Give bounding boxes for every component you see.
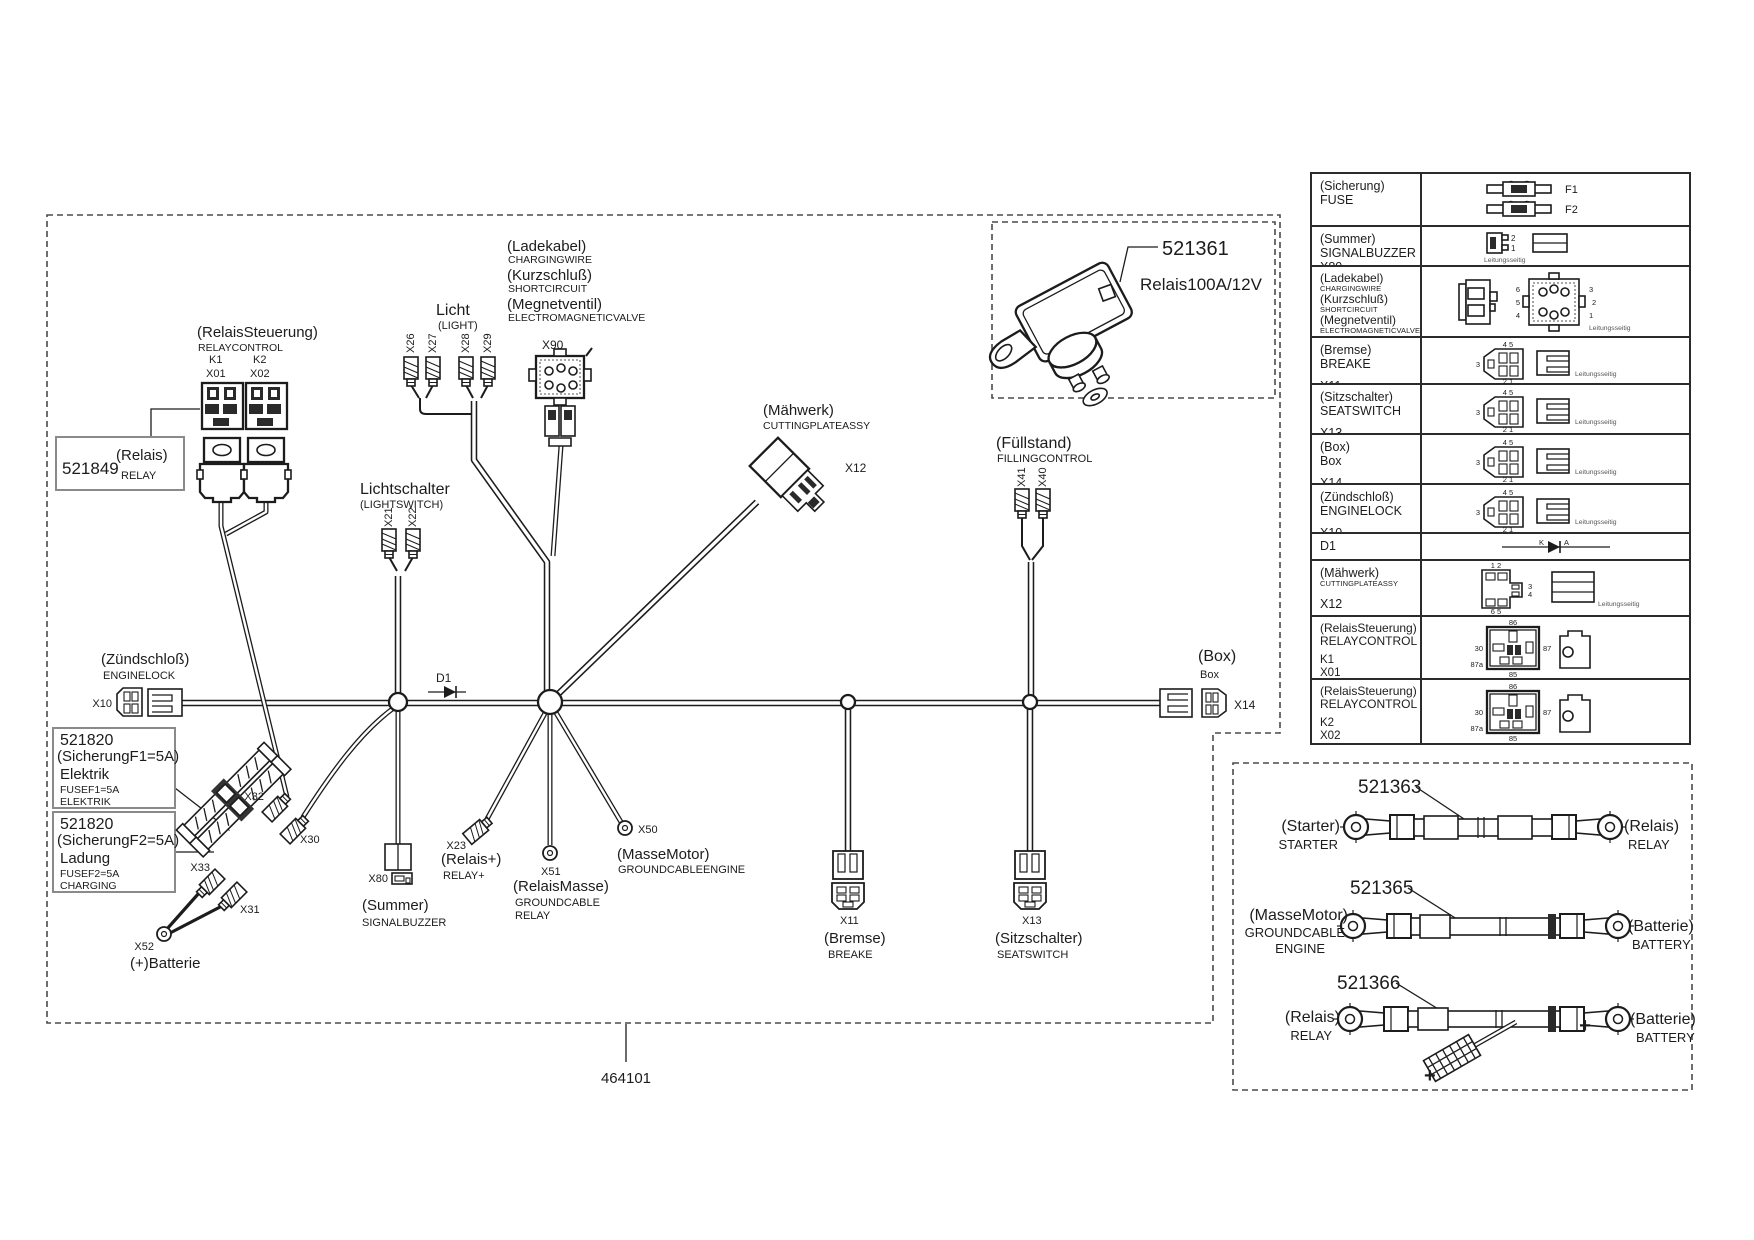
row-label-de: (Zündschloß) [1320, 490, 1417, 504]
row-label-en: BREAKE [1320, 357, 1417, 371]
pin-label: 2 1 [1502, 525, 1512, 532]
buzzer-en: SIGNALBUZZER [362, 917, 446, 929]
pin-label: 3 [1475, 360, 1479, 369]
pin-label: 2 1 [1502, 377, 1512, 384]
row-label-en: SIGNALBUZZER [1320, 246, 1417, 260]
connector-x32-label: X32 [244, 791, 264, 803]
pin-label: 85 [1508, 670, 1516, 678]
row-label-x: X12 [1320, 597, 1417, 611]
connector-x28-label: X28 [460, 333, 472, 353]
row-label-en: SEATSWITCH [1320, 404, 1417, 418]
pin-label: 87a [1470, 724, 1483, 733]
pin-label: 1 [1589, 311, 1593, 320]
table-row-relaycontrol-k1: (RelaisSteuerung) RELAYCONTROL K1 X01 86… [1312, 617, 1689, 680]
table-row-cutting: (Mähwerk) CUTTINGPLATEASSY X12 1 2 3 4 6… [1312, 561, 1689, 617]
light-label-en: (LIGHT) [438, 320, 478, 332]
junction-seat [1023, 695, 1037, 709]
connector-x14-label: X14 [1234, 698, 1256, 712]
filling-en: FILLINGCONTROL [997, 453, 1092, 465]
relaycontrol-x01: X01 [206, 368, 226, 380]
wire-side-note: Leitungsseitig [1575, 371, 1617, 378]
fuse2-en2: CHARGING [60, 880, 117, 892]
fuse-icon: F1 F2 [1481, 177, 1631, 223]
row-label-en: CUTTINGPLATEASSY [1320, 580, 1417, 589]
row-label-d1: D1 [1320, 539, 1417, 553]
pin-label: 86 [1508, 618, 1516, 627]
pin-label: 1 2 [1490, 561, 1500, 570]
engine-ground-en: GROUNDCABLEENGINE [618, 864, 745, 876]
row-label-en: RELAYCONTROL [1320, 698, 1417, 711]
charging-de1: (Ladekabel) [507, 238, 586, 255]
pin-label: A [1564, 539, 1569, 547]
lightswitch-en: (LIGHTSWITCH) [360, 499, 443, 511]
cable2-right-en: BATTERY [1632, 937, 1691, 952]
table-row-enginelock: (Zündschloß) ENGINELOCK X10 4 5 3 2 1 Le… [1312, 485, 1689, 534]
enginelock-en: ENGINELOCK [103, 670, 176, 682]
connector-x32-icon [262, 791, 292, 821]
pin-label: 4 [1515, 311, 1519, 320]
wire-side-note: Leitungsseitig [1589, 325, 1631, 332]
pin-label: 3 [1475, 408, 1479, 417]
cable1-right-de: (Relais) [1624, 818, 1679, 835]
fuse2-en1: FUSEF2=5A [60, 868, 119, 880]
relay-ground-en2: RELAY [515, 910, 551, 922]
pin-label: 6 [1515, 285, 1519, 294]
charging-de2: (Kurzschluß) [507, 267, 592, 284]
connector-x28-icon [459, 357, 473, 386]
row-label-de: (Kurzschluß) [1320, 293, 1417, 306]
pin-label: 2 1 [1502, 425, 1512, 432]
buzzer-de: (Summer) [362, 897, 429, 914]
connector-x40-icon [1036, 489, 1050, 518]
cable1-left-de: (Starter) [1281, 818, 1340, 835]
diode-icon: K A [1496, 539, 1616, 555]
pin-label: 30 [1474, 644, 1482, 653]
pin-label: 5 [1515, 298, 1519, 307]
cable3-left-en: RELAY [1290, 1028, 1332, 1043]
relaycontrol-k1: K1 [209, 354, 222, 366]
enginelock-de: (Zündschloß) [101, 651, 189, 668]
lightswitch-de: Lichtschalter [360, 481, 450, 498]
charging-en3: ELECTROMAGNETICVALVE [508, 312, 645, 324]
row-label-x: X13 [1320, 426, 1417, 433]
fuse1-en2: ELEKTRIK [60, 796, 111, 808]
relay-socket-icon: 86 30 87 87a 85 [1456, 682, 1656, 742]
table-row-box: (Box) Box X14 4 5 3 2 1 Leitungsseitig [1312, 435, 1689, 485]
brake-de: (Bremse) [824, 930, 886, 947]
connector-x10-icon [117, 688, 182, 716]
row-label-de: (Bremse) [1320, 343, 1417, 357]
connector-x27-icon [426, 357, 440, 386]
wire-side-note: Leitungsseitig [1575, 419, 1617, 426]
pin-label: 30 [1474, 708, 1482, 717]
pin-label: K [1538, 539, 1543, 547]
seat-en: SEATSWITCH [997, 949, 1068, 961]
relay100-part-number: 521361 [1162, 238, 1229, 260]
seat-de: (Sitzschalter) [995, 930, 1083, 947]
connector-x80-label: X80 [368, 873, 388, 885]
junction-center [538, 690, 562, 714]
table-row-seat: (Sitzschalter) SEATSWITCH X13 4 5 3 2 1 … [1312, 385, 1689, 435]
fuse1-de: (SicherungF1=5A) [57, 748, 179, 765]
row-label-x: X10 [1320, 526, 1417, 532]
relaycontrol-label-en: RELAYCONTROL [198, 342, 283, 354]
row-label-en: ENGINELOCK [1320, 504, 1417, 518]
pin-label: 3 [1475, 458, 1479, 467]
wire-side-note: Leitungsseitig [1598, 601, 1640, 608]
x12-connector-icon: 1 2 3 4 6 5 Leitungsseitig [1456, 561, 1656, 615]
battery-plus-label: (+)Batterie [130, 955, 200, 972]
row-label-x: X02 [1320, 730, 1417, 743]
pin-label: 87 [1543, 708, 1551, 717]
junction-left [389, 693, 407, 711]
wire-side-note: Leitungsseitig [1575, 469, 1617, 476]
junction-brake [841, 695, 855, 709]
row-label-de: (Mähwerk) [1320, 566, 1417, 580]
pin-label: 1 [1511, 244, 1516, 253]
cable-521363: 521363 (Starter) STARTER (Relais) RELAY [1279, 777, 1680, 852]
cable3-left-de: (Relais) [1285, 1009, 1340, 1026]
pin-label: 4 5 [1502, 340, 1512, 349]
table-row-buzzer: (Summer) SIGNALBUZZER X80 2 1 Leitungsse… [1312, 227, 1689, 267]
pin-label: 85 [1508, 734, 1516, 742]
row-label-de: (Megnetventil) [1320, 314, 1417, 327]
charging-de3: (Megnetventil) [507, 296, 602, 313]
row-label-k: K1 [1320, 654, 1417, 667]
connector-x33-label: X33 [190, 862, 210, 874]
row-label-de: (RelaisSteuerung) [1320, 685, 1417, 698]
conn5-icon: 4 5 3 2 1 Leitungsseitig [1461, 436, 1651, 482]
table-row-brake: (Bremse) BREAKE X11 4 5 3 2 1 Leitungsse… [1312, 338, 1689, 385]
pin-label: 87 [1543, 644, 1551, 653]
x90-connector-icon: 6 5 4 3 2 1 Leitungsseitig [1451, 271, 1661, 333]
table-row-diode: D1 K A [1312, 534, 1689, 561]
cable2-left-en2: ENGINE [1275, 941, 1325, 956]
terminal-x52-label: X52 [134, 941, 154, 953]
cable2-right-de: (Batterie) [1628, 918, 1694, 935]
cutting-en: CUTTINGPLATEASSY [763, 420, 870, 432]
relay-ground-en1: GROUNDCABLE [515, 897, 600, 909]
cable2-left-de: (MasseMotor) [1249, 907, 1348, 924]
pin-label: 4 5 [1502, 488, 1512, 497]
row-label-x: X90 [1320, 335, 1417, 336]
table-row-relaycontrol-k2: (RelaisSteuerung) RELAYCONTROL K2 X02 86… [1312, 680, 1689, 743]
connector-x13-label: X13 [1022, 915, 1042, 927]
buzzer-body [385, 844, 411, 870]
connector-x21-label: X21 [383, 507, 395, 527]
terminal-x50-icon [618, 821, 632, 835]
light-label-de: Licht [436, 302, 470, 319]
connector-x31-label: X31 [240, 904, 260, 916]
terminal-x50-label: X50 [638, 824, 658, 836]
cable3-right-de: (Batterie) [1630, 1011, 1696, 1028]
connector-x11-label: X11 [840, 915, 859, 927]
relaycontrol-label-de: (RelaisSteuerung) [197, 324, 318, 341]
cable2-left-en1: GROUNDCABLE [1245, 925, 1346, 940]
pin-label: 87a [1470, 660, 1483, 669]
table-row-x90: (Ladekabel) CHARGINGWIRE (Kurzschluß) SH… [1312, 267, 1689, 338]
filling-de: (Füllstand) [996, 435, 1072, 452]
row-label-en: Box [1320, 454, 1417, 468]
relay-socket-k2 [246, 383, 287, 429]
cable1-left-en: STARTER [1279, 837, 1338, 852]
relay100-label: Relais100A/12V [1140, 275, 1263, 294]
relay-k1-body [197, 438, 247, 502]
row-label-de: (Box) [1320, 440, 1417, 454]
fuse1-name: Elektrik [60, 766, 110, 783]
box-de: (Box) [1198, 648, 1236, 665]
cutting-plate-connector [750, 438, 833, 521]
row-label-en: RELAYCONTROL [1320, 635, 1417, 648]
wire-side-note: Leitungsseitig [1484, 257, 1526, 264]
connector-x29-icon [481, 357, 495, 386]
fuse-f1-label: F1 [1565, 184, 1578, 196]
row-label-x: X14 [1320, 476, 1417, 483]
cable1-part: 521363 [1358, 777, 1421, 798]
cutting-de: (Mähwerk) [763, 402, 834, 419]
fuse2-de: (SicherungF2=5A) [57, 832, 179, 849]
diode-d1-label: D1 [436, 671, 452, 685]
wiring-diagram-page: (RelaisSteuerung) RELAYCONTROL K1 K2 X01… [0, 0, 1754, 1240]
terminal-x51-icon [543, 846, 557, 860]
pin-label: 4 5 [1502, 438, 1512, 447]
cable1-right-en: RELAY [1628, 837, 1670, 852]
battery-plus-symbol: + [1424, 1065, 1436, 1087]
relay-100a-illustration [974, 260, 1163, 438]
terminal-x51-label: X51 [541, 866, 561, 878]
harness-part-number: 464101 [601, 1070, 651, 1087]
conn5-icon: 4 5 3 2 1 Leitungsseitig [1461, 486, 1651, 532]
diode-d1-symbol [428, 686, 466, 698]
table-row-fuse: (Sicherung) FUSE F1 F2 [1312, 174, 1689, 227]
connector-x11-icon [832, 851, 864, 909]
pin-label: 86 [1508, 682, 1516, 691]
cable-521365: 521365 (MasseMotor) GROUNDCABLE ENGINE (… [1245, 878, 1694, 956]
pin-label: 3 [1589, 285, 1593, 294]
relay-ground-de: (RelaisMasse) [513, 878, 609, 895]
connector-x80-icon [392, 873, 412, 884]
brake-en: BREAKE [828, 949, 873, 961]
connector-x90-icon [529, 348, 592, 405]
connector-x23-icon [463, 815, 494, 844]
relay-k2-body [241, 438, 291, 502]
row-label-de: (Sicherung) [1320, 179, 1417, 193]
relaycontrol-k2: K2 [253, 354, 266, 366]
connector-x26-icon [404, 357, 418, 386]
engine-ground-de: (MasseMotor) [617, 846, 710, 863]
fuse1-en1: FUSEF1=5A [60, 784, 119, 796]
pin-label: 2 [1592, 298, 1596, 307]
row-label-x: X01 [1320, 667, 1417, 678]
connector-x41-icon [1015, 489, 1029, 518]
charging-en2: SHORTCIRCUIT [508, 283, 588, 295]
cable2-part: 521365 [1350, 878, 1413, 899]
relay-part-en: RELAY [121, 470, 157, 482]
connector-x14-icon [1160, 689, 1226, 717]
buzzer-connector-icon: 2 1 Leitungsseitig [1481, 227, 1631, 265]
pin-label: 2 1 [1502, 475, 1512, 482]
relay-socket-k1 [202, 383, 243, 429]
fuse2-part: 521820 [60, 816, 113, 833]
connector-x12-label: X12 [845, 461, 867, 475]
relay-part-number: 521849 [62, 459, 119, 478]
row-label-en: FUSE [1320, 193, 1417, 207]
connector-x29-label: X29 [482, 333, 494, 353]
connector-x30-label: X30 [300, 834, 320, 846]
box-en: Box [1200, 669, 1219, 681]
row-label-de: (Summer) [1320, 232, 1417, 246]
connector-x26-label: X26 [405, 333, 417, 353]
fuse2-name: Ladung [60, 850, 110, 867]
pin-label: 2 [1511, 234, 1516, 243]
pin-label: 6 5 [1490, 607, 1500, 615]
connector-x21-icon [382, 529, 396, 558]
row-label-x: X80 [1320, 260, 1417, 265]
pin-label: 4 [1528, 590, 1532, 599]
connector-reference-table: (Sicherung) FUSE F1 F2 (Summer) SIGNALBU… [1310, 172, 1691, 745]
connector-x40-label: X40 [1037, 467, 1049, 487]
cable3-right-en: BATTERY [1636, 1030, 1695, 1045]
relay-plus-de: (Relais+) [441, 851, 501, 868]
charging-en1: CHARGINGWIRE [508, 254, 592, 266]
connector-x27-label: X27 [427, 333, 439, 353]
relay-plus-en: RELAY+ [443, 870, 485, 882]
relay-socket-icon: 86 30 87 87a 85 [1456, 618, 1656, 678]
pin-label: 4 5 [1502, 388, 1512, 397]
relay-part-de: (Relais) [116, 447, 168, 464]
connector-x22-label: X22 [407, 507, 419, 527]
connector-x10-label: X10 [92, 698, 112, 710]
cable3-part: 521366 [1337, 973, 1400, 994]
fuse1-part: 521820 [60, 732, 113, 749]
cable-521366: 521366 + + (Relais) RELAY (Batterie) BAT… [1285, 973, 1696, 1087]
relaycontrol-x02: X02 [250, 368, 270, 380]
conn5-icon: 4 5 3 2 1 Leitungsseitig [1461, 386, 1651, 432]
valve-plug-icon [545, 406, 575, 446]
row-label-de: (RelaisSteuerung) [1320, 622, 1417, 635]
row-label-de: (Sitzschalter) [1320, 390, 1417, 404]
row-label-x: X11 [1320, 379, 1417, 383]
connector-x22-icon [406, 529, 420, 558]
cable3-plus-symbol: + [1579, 1015, 1591, 1037]
wire-side-note: Leitungsseitig [1575, 519, 1617, 526]
fuse-f2-label: F2 [1565, 204, 1578, 216]
connector-x41-label: X41 [1016, 467, 1028, 487]
row-label-k: K2 [1320, 717, 1417, 730]
pin-label: 3 [1475, 508, 1479, 517]
row-label-de: (Ladekabel) [1320, 272, 1417, 285]
connector-x13-icon [1014, 851, 1046, 909]
conn5-icon: 4 5 3 2 1 Leitungsseitig [1461, 338, 1651, 383]
terminal-x52-icon [157, 927, 171, 941]
